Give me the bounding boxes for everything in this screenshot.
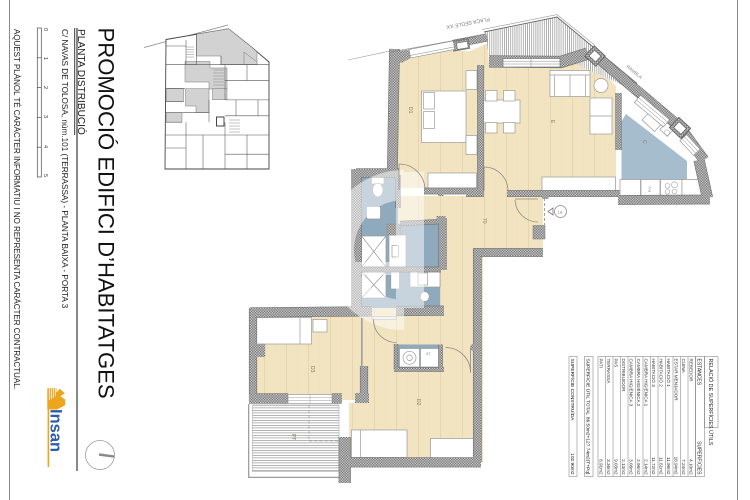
svg-text:PAS: PAS: [614, 359, 619, 368]
svg-text:4: 4: [42, 145, 48, 148]
svg-text:C: C: [641, 140, 647, 144]
svg-text:3.06m2: 3.06m2: [629, 459, 634, 475]
svg-text:1: 1: [42, 57, 48, 60]
svg-text:11.72m2: 11.72m2: [651, 457, 656, 475]
svg-text:4.10m2: 4.10m2: [689, 459, 694, 475]
svg-text:ESTANCES: ESTANCES: [696, 359, 702, 386]
svg-text:HABITACIÓ 1: HABITACIÓ 1: [666, 359, 672, 388]
svg-text:86.50m2+127.74m2(T+Pq): 86.50m2+127.74m2(T+Pq): [585, 417, 591, 475]
svg-text:2.96m2: 2.96m2: [636, 459, 641, 475]
svg-text:0: 0: [42, 28, 48, 31]
svg-text:7.24m2: 7.24m2: [681, 459, 686, 475]
svg-text:3.36m2: 3.36m2: [606, 459, 611, 475]
svg-text:PROMOCIÓ EDIFICI D’HABITATGES: PROMOCIÓ EDIFICI D’HABITATGES: [94, 28, 119, 399]
svg-text:CUINA: CUINA: [681, 359, 686, 374]
svg-text:CAMBRA HIGIÈNICA 1: CAMBRA HIGIÈNICA 1: [644, 359, 650, 407]
svg-text:P/V: P/V: [648, 186, 652, 192]
svg-text:PT: PT: [290, 434, 296, 440]
svg-text:D3: D3: [309, 366, 315, 373]
svg-text:ESTAR MENJADOR: ESTAR MENJADOR: [674, 359, 679, 402]
svg-text:1a: 1a: [558, 210, 563, 215]
svg-text:CAMBRA HIGIÈNICA 3: CAMBRA HIGIÈNICA 3: [629, 359, 635, 407]
svg-text:11.96m2: 11.96m2: [666, 457, 671, 475]
svg-text:AQUEST PLÀNOL TÉ CARÀCTER INFO: AQUEST PLÀNOL TÉ CARÀCTER INFORMATIU I N…: [12, 29, 21, 390]
svg-text:SUPERFÍCIES: SUPERFÍCIES: [696, 441, 703, 475]
svg-text:DISTRIBUIDOR: DISTRIBUIDOR: [621, 359, 626, 393]
svg-text:8.91m2: 8.91m2: [599, 459, 604, 475]
svg-text:2.14m2: 2.14m2: [644, 459, 649, 475]
svg-text:2.13m2: 2.13m2: [621, 459, 626, 475]
svg-text:HABITACIÓ 3: HABITACIÓ 3: [651, 359, 657, 388]
svg-text:11.61m2: 11.61m2: [659, 457, 664, 475]
svg-text:C/ NAVAS DE TOLOSA, núm.101 (T: C/ NAVAS DE TOLOSA, núm.101 (TERRASSA) -…: [60, 29, 69, 309]
svg-text:D2: D2: [415, 399, 421, 406]
svg-text:2: 2: [42, 86, 48, 89]
svg-text:D1: D1: [407, 107, 413, 114]
svg-text:AT: AT: [426, 352, 431, 356]
svg-text:REBEDOR: REBEDOR: [689, 359, 694, 382]
svg-text:PATI: PATI: [599, 359, 604, 369]
svg-text:CAMBRA HIGIÈNICA 2: CAMBRA HIGIÈNICA 2: [636, 359, 642, 407]
svg-text:3: 3: [42, 115, 48, 118]
svg-text:5: 5: [42, 174, 48, 177]
svg-text:TERRASSA: TERRASSA: [606, 359, 611, 385]
svg-text:9.03m2: 9.03m2: [614, 459, 619, 475]
svg-text:RELACIÓ DE SUPERFÍCIES ÚTILS: RELACIÓ DE SUPERFÍCIES ÚTILS: [707, 359, 714, 446]
svg-text:HABITACIÓ 2: HABITACIÓ 2: [659, 359, 665, 388]
svg-text:102.90m2: 102.90m2: [569, 453, 575, 475]
svg-text:SUPERFÍCIE CONSTRUÏDA: SUPERFÍCIE CONSTRUÏDA: [569, 359, 576, 422]
svg-text:18.94m2: 18.94m2: [674, 457, 679, 475]
svg-text:SUPERFÍCIE ÚTIL TOTAL: SUPERFÍCIE ÚTIL TOTAL: [585, 359, 592, 416]
svg-text:70: 70: [481, 218, 487, 224]
svg-text:Insan: Insan: [47, 409, 65, 452]
